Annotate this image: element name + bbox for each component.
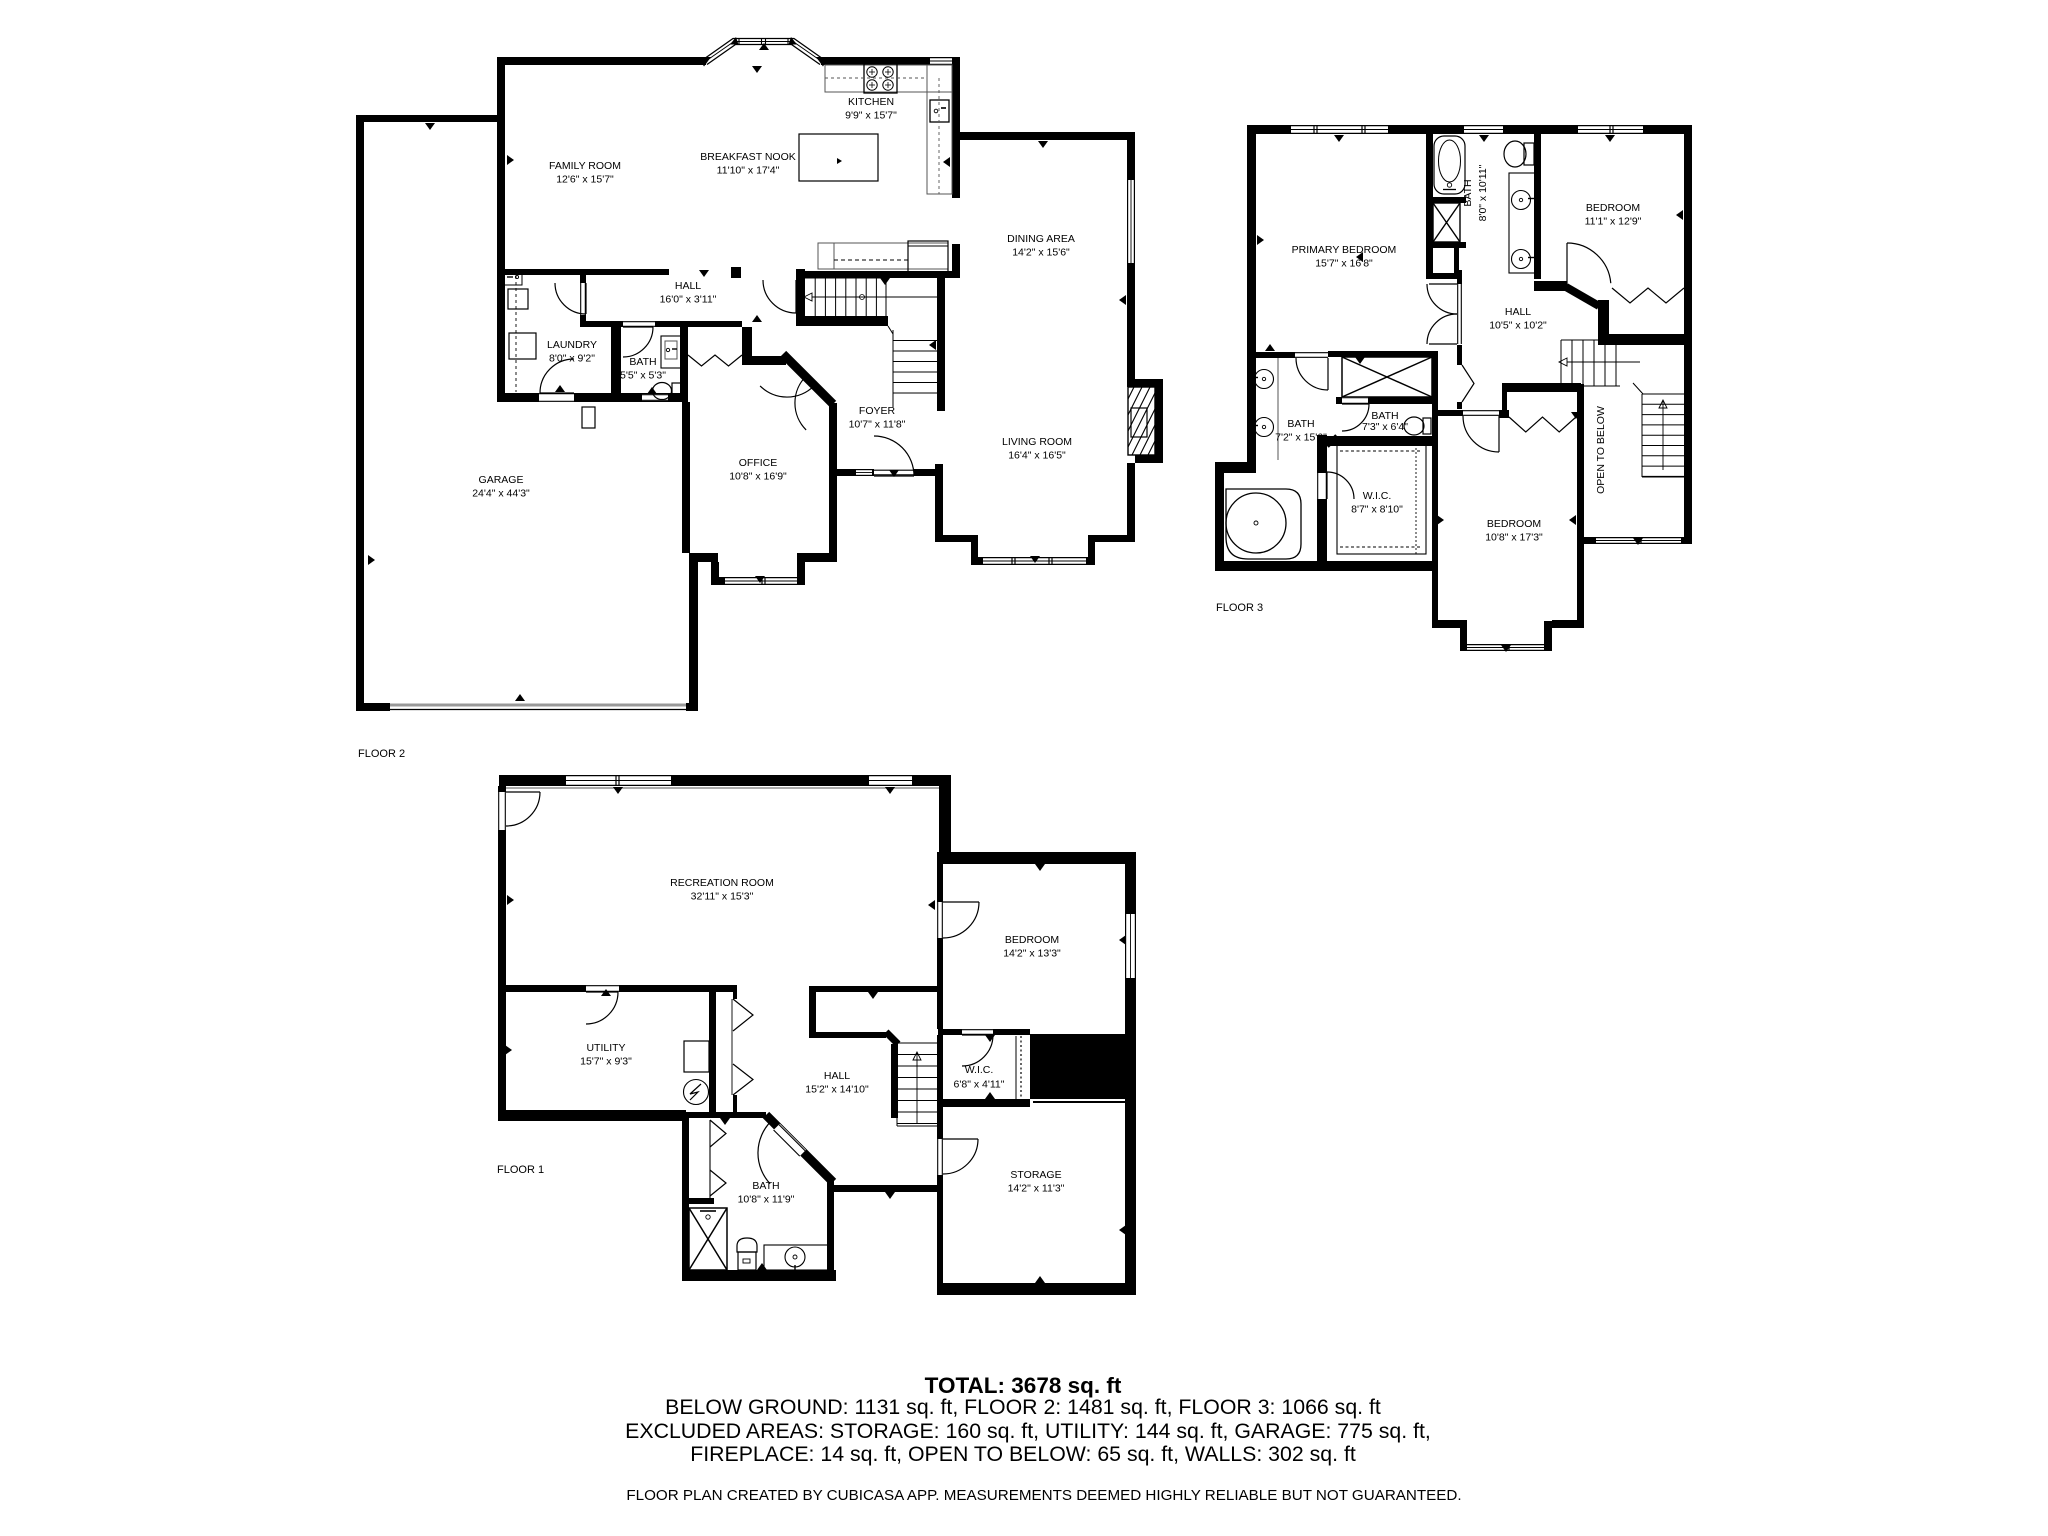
svg-text:OPEN TO BELOW: OPEN TO BELOW bbox=[1595, 406, 1607, 494]
svg-text:10'8" x 16'9": 10'8" x 16'9" bbox=[729, 470, 787, 482]
svg-text:BEDROOM: BEDROOM bbox=[1586, 202, 1640, 214]
svg-text:7'3" x 6'4": 7'3" x 6'4" bbox=[1362, 421, 1408, 433]
svg-text:15'7" x 9'3": 15'7" x 9'3" bbox=[580, 1055, 632, 1067]
svg-text:BATH: BATH bbox=[1462, 179, 1474, 206]
svg-text:24'4" x 44'3": 24'4" x 44'3" bbox=[472, 487, 530, 499]
svg-text:FOYER: FOYER bbox=[859, 405, 896, 417]
svg-text:10'7" x 11'8": 10'7" x 11'8" bbox=[849, 418, 906, 430]
svg-text:LIVING ROOM: LIVING ROOM bbox=[1002, 436, 1072, 448]
svg-text:10'5" x 10'2": 10'5" x 10'2" bbox=[1489, 319, 1547, 331]
svg-text:FLOOR 1: FLOOR 1 bbox=[497, 1164, 544, 1176]
svg-text:6'8" x 4'11": 6'8" x 4'11" bbox=[954, 1079, 1005, 1091]
svg-text:FLOOR PLAN CREATED BY CUBICASA: FLOOR PLAN CREATED BY CUBICASA APP. MEAS… bbox=[626, 1487, 1461, 1504]
svg-text:DINING AREA: DINING AREA bbox=[1007, 233, 1075, 245]
svg-text:LAUNDRY: LAUNDRY bbox=[547, 339, 597, 351]
svg-text:16'0" x 3'11": 16'0" x 3'11" bbox=[660, 293, 717, 305]
svg-text:STORAGE: STORAGE bbox=[1010, 1169, 1061, 1181]
svg-text:HALL: HALL bbox=[675, 280, 701, 292]
svg-text:BATH: BATH bbox=[752, 1180, 779, 1192]
svg-text:14'2" x 11'3": 14'2" x 11'3" bbox=[1008, 1182, 1065, 1194]
svg-text:EXCLUDED AREAS: STORAGE: 160 s: EXCLUDED AREAS: STORAGE: 160 sq. ft, UTI… bbox=[625, 1419, 1431, 1443]
svg-text:10'8" x 17'3": 10'8" x 17'3" bbox=[1485, 531, 1543, 543]
svg-text:11'1" x 12'9": 11'1" x 12'9" bbox=[1585, 215, 1642, 227]
svg-text:BEDROOM: BEDROOM bbox=[1487, 518, 1541, 530]
svg-text:9'9" x 15'7": 9'9" x 15'7" bbox=[845, 109, 897, 121]
svg-text:FLOOR 3: FLOOR 3 bbox=[1216, 602, 1263, 614]
svg-text:W.I.C.: W.I.C. bbox=[1363, 490, 1392, 502]
svg-text:8'0" x 9'2": 8'0" x 9'2" bbox=[549, 352, 595, 364]
svg-text:RECREATION ROOM: RECREATION ROOM bbox=[670, 877, 774, 889]
svg-text:10'8" x 11'9": 10'8" x 11'9" bbox=[738, 1193, 795, 1205]
svg-text:FIREPLACE: 14 sq. ft, OPEN TO: FIREPLACE: 14 sq. ft, OPEN TO BELOW: 65 … bbox=[690, 1442, 1356, 1466]
svg-text:5'5" x 5'3": 5'5" x 5'3" bbox=[620, 369, 666, 381]
svg-text:15'2" x 14'10": 15'2" x 14'10" bbox=[805, 1083, 869, 1095]
svg-text:HALL: HALL bbox=[1505, 306, 1531, 318]
svg-text:GARAGE: GARAGE bbox=[479, 474, 524, 486]
svg-text:BEDROOM: BEDROOM bbox=[1005, 934, 1059, 946]
svg-text:7'2" x 15'6": 7'2" x 15'6" bbox=[1275, 431, 1327, 443]
svg-text:8'7" x 8'10": 8'7" x 8'10" bbox=[1351, 503, 1403, 515]
svg-text:BATH: BATH bbox=[1287, 418, 1314, 430]
svg-text:BATH: BATH bbox=[629, 356, 656, 368]
svg-text:HALL: HALL bbox=[824, 1070, 850, 1082]
svg-text:32'11" x 15'3": 32'11" x 15'3" bbox=[691, 890, 754, 902]
svg-text:11'10" x 17'4": 11'10" x 17'4" bbox=[717, 164, 780, 176]
svg-text:BELOW GROUND: 1131 sq. ft, FLO: BELOW GROUND: 1131 sq. ft, FLOOR 2: 1481… bbox=[665, 1395, 1381, 1419]
svg-text:16'4" x 16'5": 16'4" x 16'5" bbox=[1008, 449, 1066, 461]
svg-text:OFFICE: OFFICE bbox=[739, 457, 778, 469]
svg-text:FLOOR 2: FLOOR 2 bbox=[358, 748, 405, 760]
svg-text:12'6" x 15'7": 12'6" x 15'7" bbox=[556, 173, 614, 185]
svg-text:8'0" x 10'11": 8'0" x 10'11" bbox=[1477, 164, 1489, 221]
svg-text:KITCHEN: KITCHEN bbox=[848, 96, 894, 108]
svg-text:14'2" x 13'3": 14'2" x 13'3" bbox=[1003, 947, 1061, 959]
svg-text:W.I.C.: W.I.C. bbox=[965, 1064, 994, 1076]
svg-text:UTILITY: UTILITY bbox=[586, 1042, 625, 1054]
svg-text:FAMILY ROOM: FAMILY ROOM bbox=[549, 160, 621, 172]
svg-text:PRIMARY BEDROOM: PRIMARY BEDROOM bbox=[1292, 244, 1397, 256]
svg-text:15'7" x 16'8": 15'7" x 16'8" bbox=[1315, 257, 1373, 269]
svg-text:BREAKFAST NOOK: BREAKFAST NOOK bbox=[700, 151, 796, 163]
svg-text:14'2" x 15'6": 14'2" x 15'6" bbox=[1012, 246, 1070, 258]
